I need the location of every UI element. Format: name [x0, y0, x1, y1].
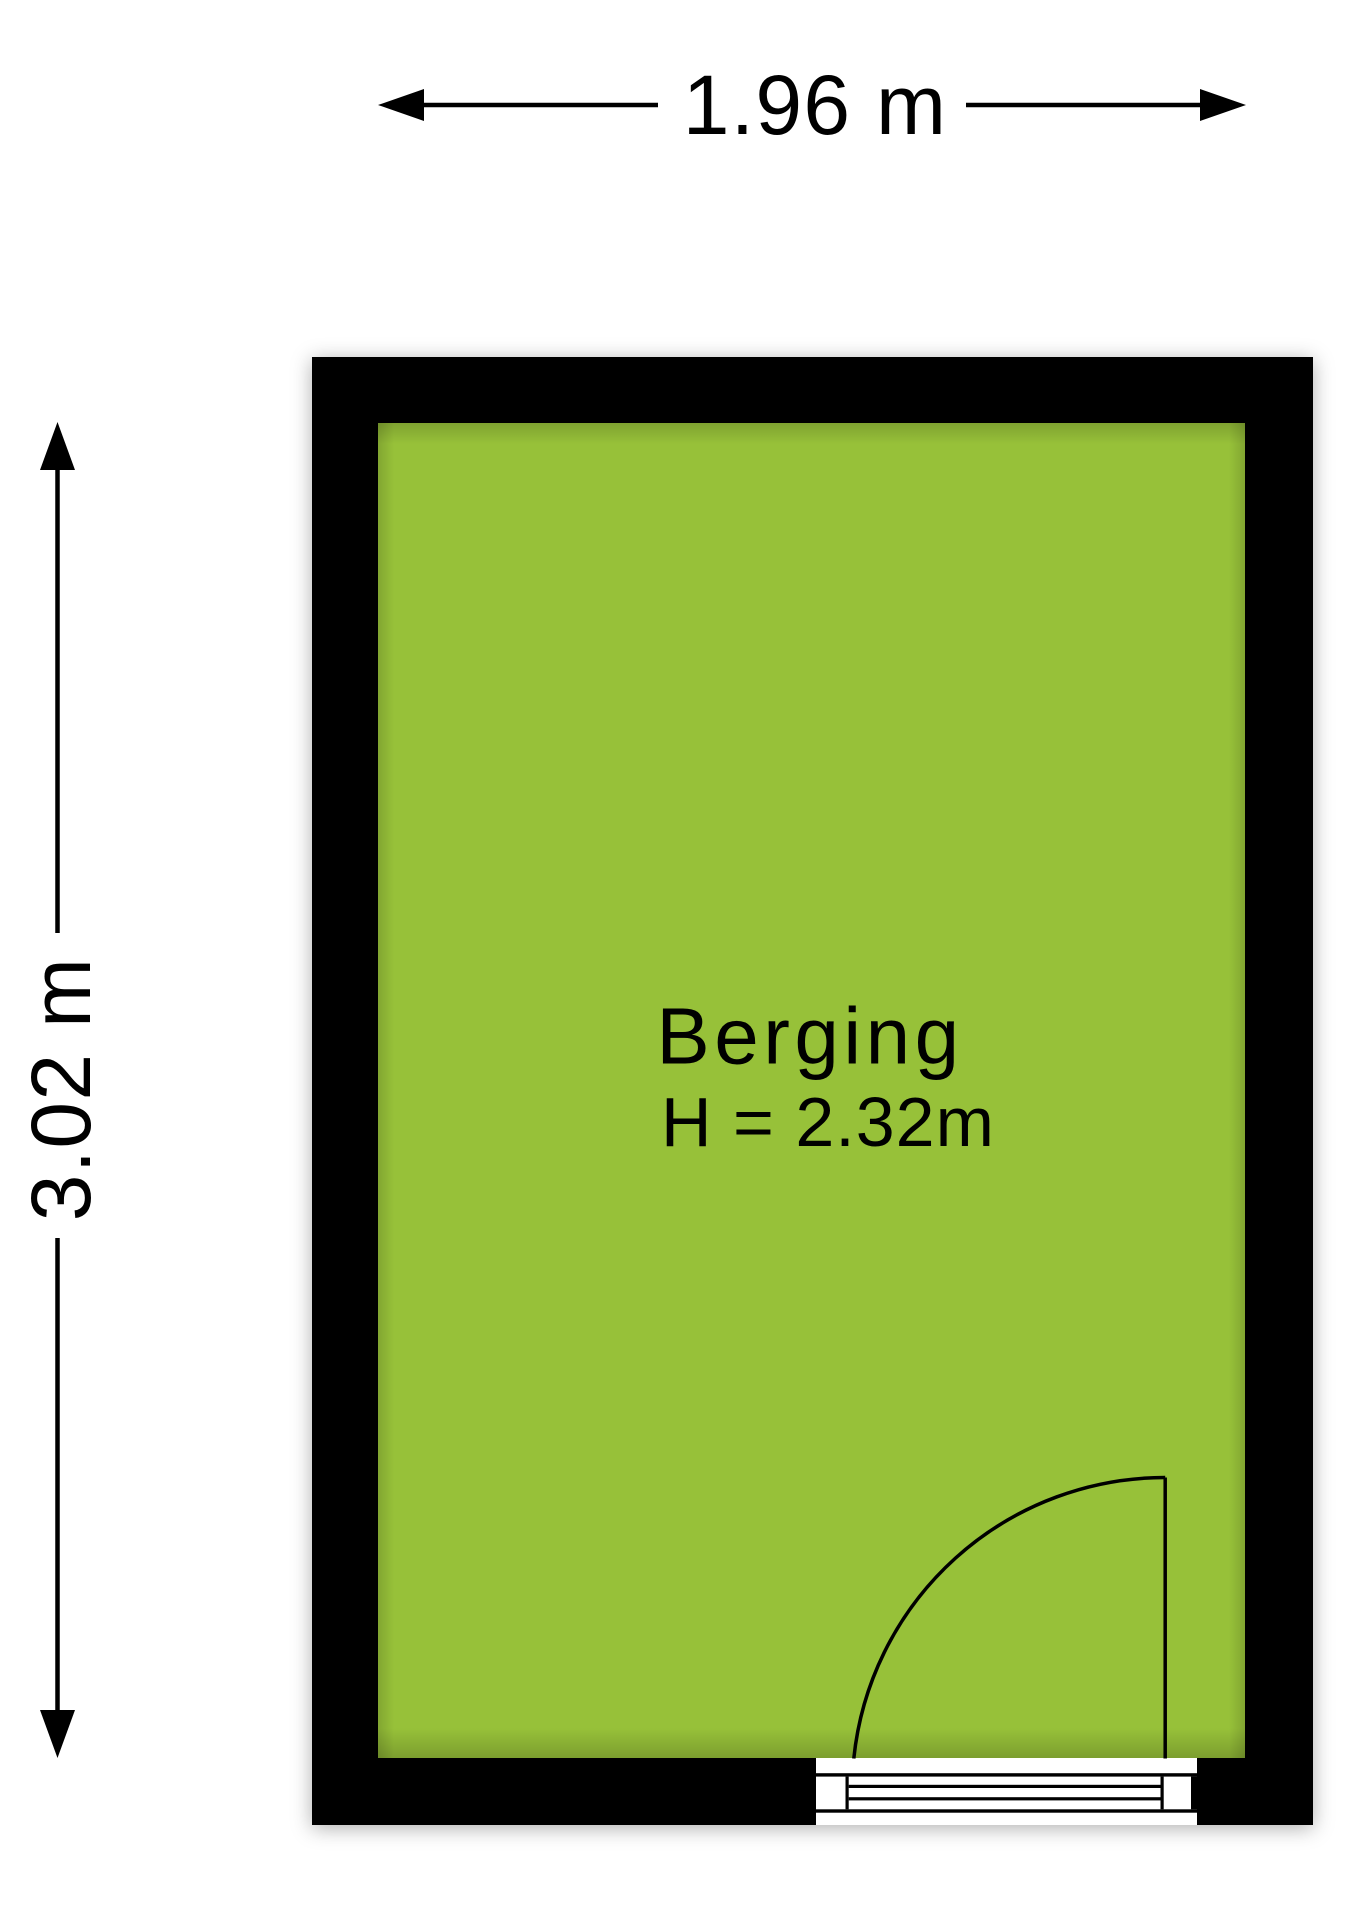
svg-text:Berging: Berging: [656, 992, 963, 1081]
svg-text:3.02 m: 3.02 m: [14, 957, 108, 1222]
svg-text:1.96 m: 1.96 m: [683, 58, 948, 152]
svg-text:H = 2.32m: H = 2.32m: [661, 1083, 995, 1161]
